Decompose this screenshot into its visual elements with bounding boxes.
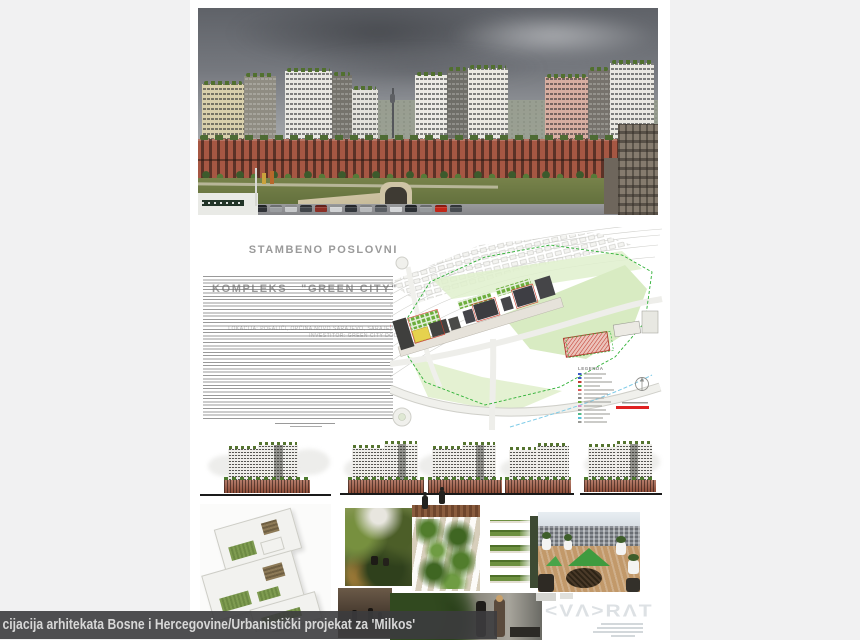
kvadrat-logo-text: <VΛ>RΛT: [545, 601, 660, 621]
person-figure-1: [422, 496, 428, 509]
render-green-wall: [412, 505, 480, 591]
caption-text: cijacija arhitekata Bosne i Hercegovine/…: [0, 611, 415, 639]
screenshot-canvas: STAMBENO POSLOVNI KOMPLEKS "GREEN CITY" …: [0, 0, 860, 640]
roundabout-north: [396, 257, 408, 269]
tower-white-1: [285, 71, 332, 145]
tower-dark-4: [588, 70, 610, 145]
arcade-roof-green: [200, 135, 620, 140]
car-row: [240, 205, 630, 213]
tower-white-4: [468, 68, 508, 145]
elevation-panel-2: [340, 437, 574, 500]
photo-roof-terrace: [538, 512, 640, 592]
foreground-sign: [202, 200, 244, 206]
elevation-panel-1: [200, 437, 331, 500]
flag-pole: [255, 168, 257, 206]
description-last-line: [275, 423, 335, 424]
legend-title: LEGENDA: [578, 366, 604, 371]
collage-tab-2: [560, 593, 573, 599]
ruin-building: [618, 124, 658, 215]
site-plan: LEGENDA: [390, 227, 665, 432]
tower-dark-3: [447, 70, 468, 145]
render-terraces: [490, 520, 532, 590]
description-signature: [290, 426, 322, 427]
photo-roof-sliver: [530, 516, 538, 588]
hero-render: [198, 8, 658, 215]
project-description: [203, 276, 393, 420]
collage-tab-1: [536, 593, 556, 601]
elevation-panel-3: [580, 439, 662, 498]
poster: STAMBENO POSLOVNI KOMPLEKS "GREEN CITY" …: [190, 0, 670, 640]
compass-icon: [636, 378, 649, 391]
kvadrat-logo: <VΛ>RΛT: [545, 601, 660, 639]
east-building: [642, 311, 658, 333]
scale-line: [622, 402, 648, 404]
caption-bar: cijacija arhitekata Bosne i Hercegovine/…: [0, 611, 497, 639]
tv-tower-head: [390, 94, 395, 103]
title-line-1: STAMBENO POSLOVNI: [200, 244, 398, 257]
person-figure-2: [439, 491, 445, 504]
scale-red-note: [616, 406, 649, 409]
flag-orange: [270, 171, 274, 184]
flag-yellow: [262, 173, 266, 184]
render-garden-courtyard: [345, 508, 412, 586]
